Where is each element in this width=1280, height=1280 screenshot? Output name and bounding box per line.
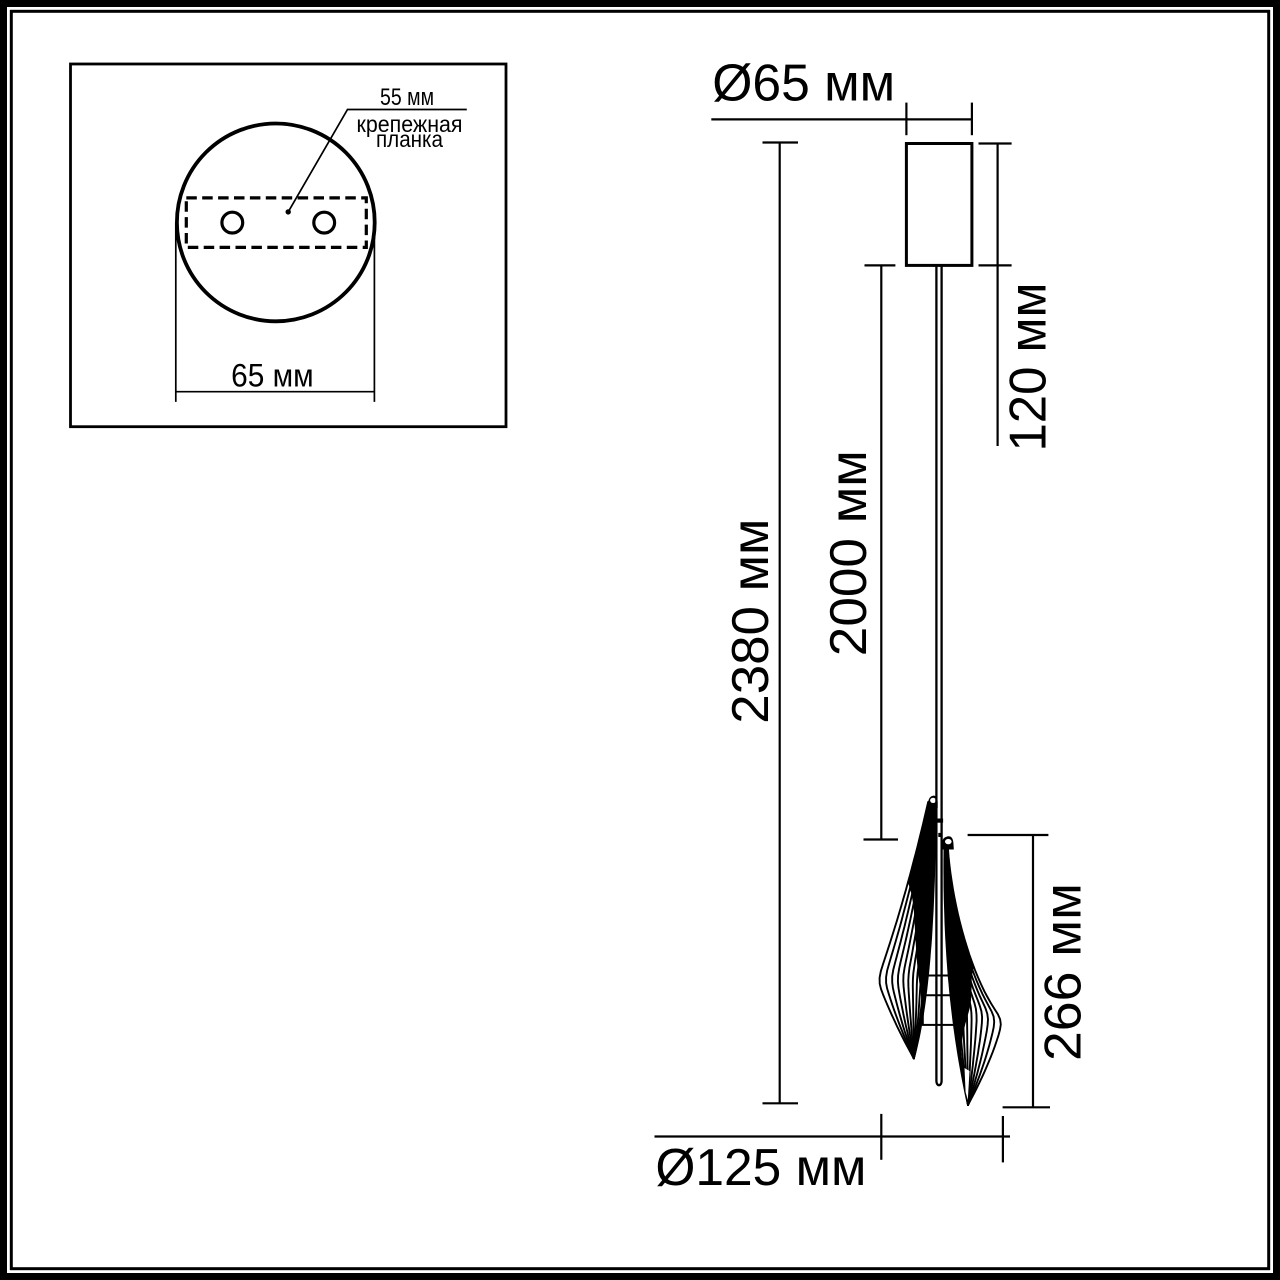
svg-text:Ø65 мм: Ø65 мм <box>712 55 895 113</box>
svg-text:65 мм: 65 мм <box>231 358 314 394</box>
svg-text:планка: планка <box>376 126 443 152</box>
svg-text:2380 мм: 2380 мм <box>722 519 780 724</box>
svg-text:Ø125 мм: Ø125 мм <box>655 1139 866 1197</box>
svg-text:266 мм: 266 мм <box>1035 883 1093 1061</box>
svg-text:55 мм: 55 мм <box>380 84 434 111</box>
svg-text:2000 мм: 2000 мм <box>820 450 878 656</box>
svg-text:120 мм: 120 мм <box>1000 283 1058 452</box>
